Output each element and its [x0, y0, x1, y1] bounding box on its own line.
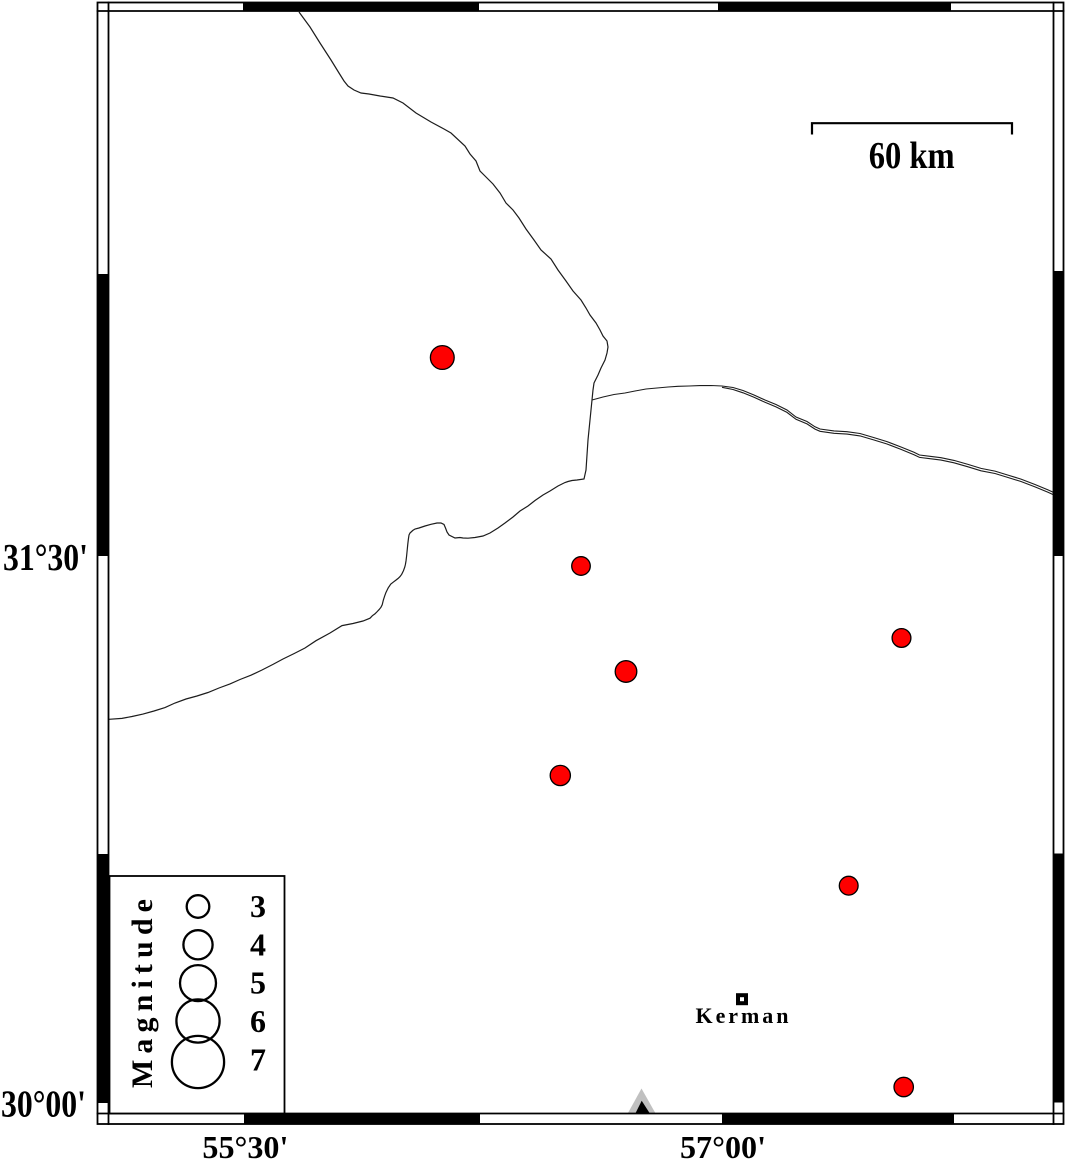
- svg-text:6: 6: [250, 1003, 266, 1039]
- svg-text:55°30': 55°30': [202, 1129, 288, 1162]
- svg-text:3: 3: [250, 888, 266, 924]
- svg-text:31°30': 31°30': [3, 537, 88, 579]
- svg-text:57°00': 57°00': [680, 1129, 766, 1162]
- svg-text:7: 7: [250, 1042, 266, 1078]
- svg-text:4: 4: [250, 927, 266, 963]
- svg-text:5: 5: [250, 965, 266, 1001]
- svg-text:30°00': 30°00': [1, 1084, 86, 1126]
- svg-text:60 km: 60 km: [869, 135, 955, 177]
